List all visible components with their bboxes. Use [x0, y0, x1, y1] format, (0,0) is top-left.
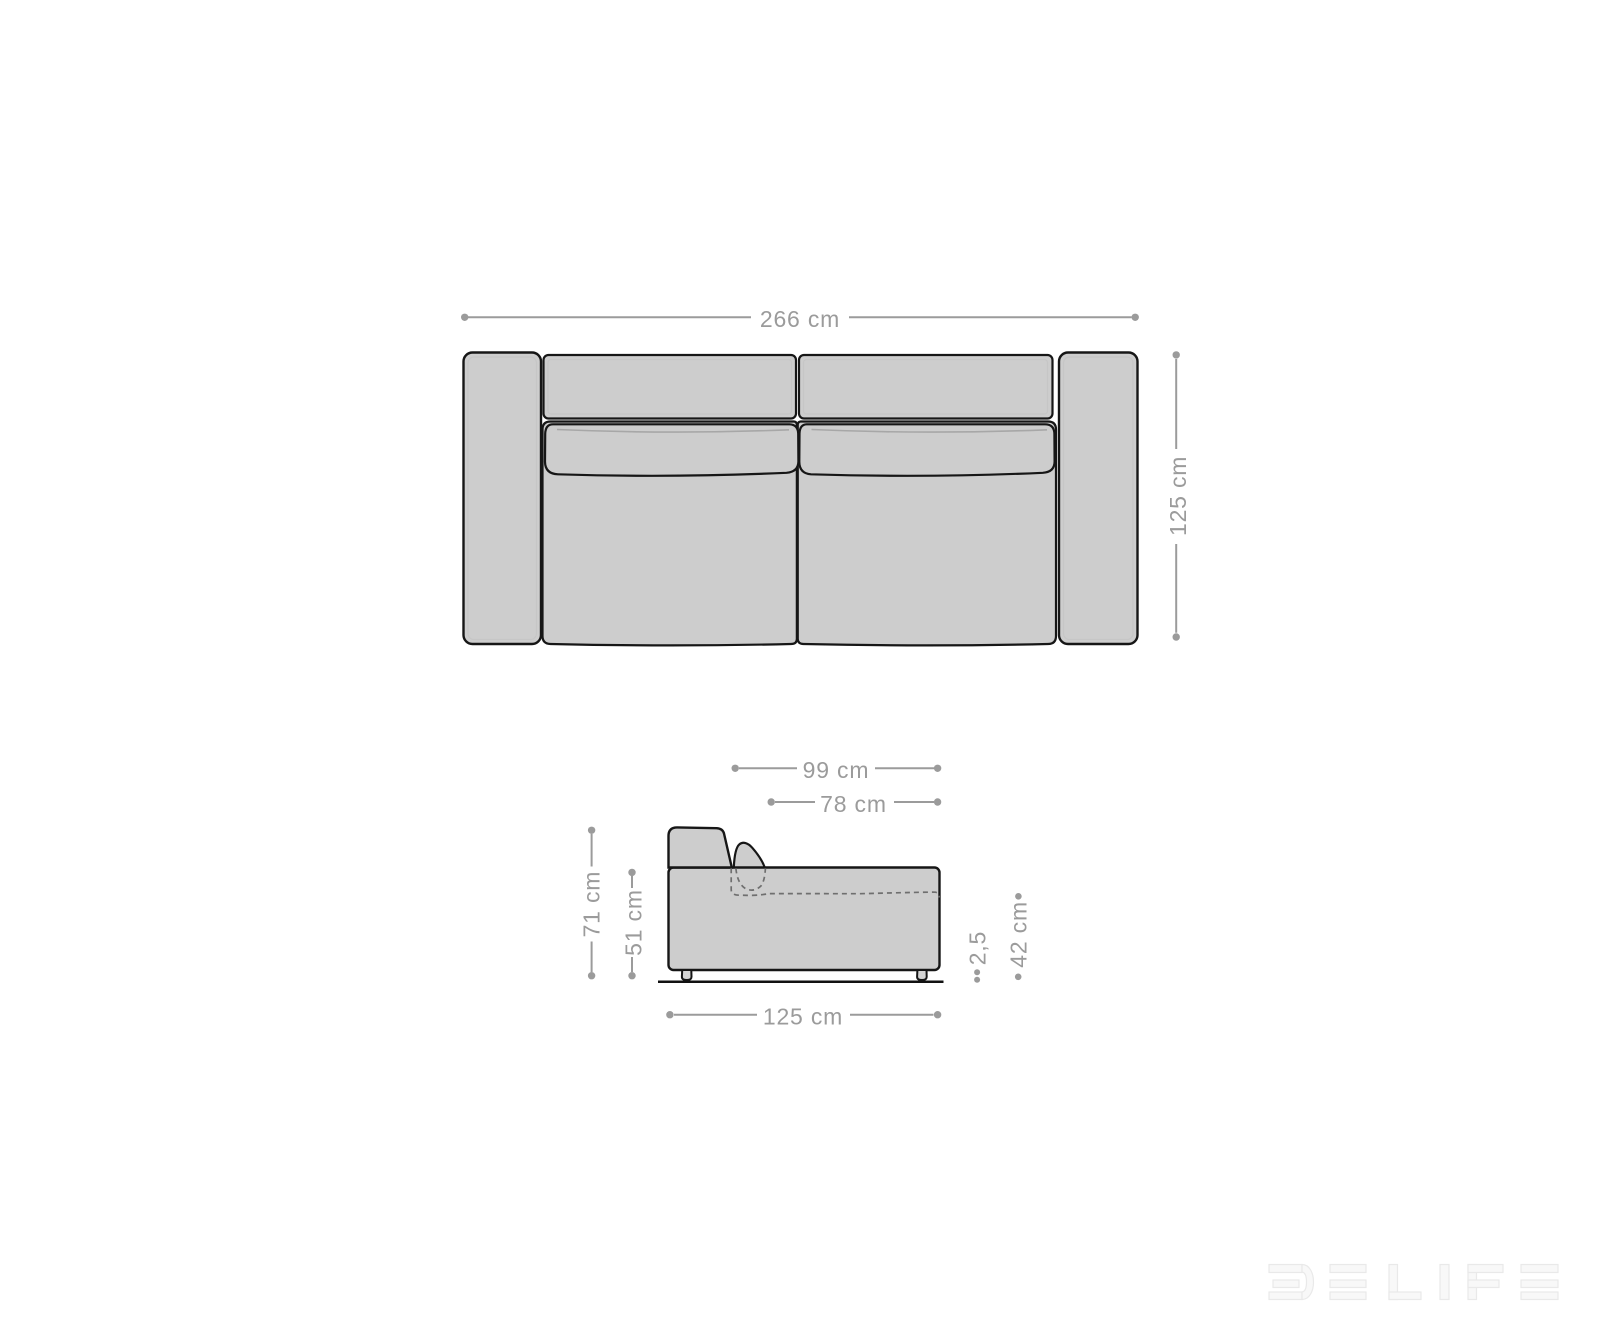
- svg-text:42 cm: 42 cm: [1005, 901, 1031, 968]
- svg-text:51 cm: 51 cm: [621, 889, 647, 956]
- svg-text:2,5: 2,5: [964, 931, 990, 965]
- svg-text:71 cm: 71 cm: [579, 871, 605, 938]
- svg-text:125 cm: 125 cm: [763, 1003, 843, 1029]
- svg-text:125 cm: 125 cm: [1165, 456, 1191, 536]
- svg-text:266 cm: 266 cm: [760, 306, 840, 332]
- svg-text:99 cm: 99 cm: [803, 757, 870, 783]
- svg-text:78 cm: 78 cm: [820, 791, 887, 817]
